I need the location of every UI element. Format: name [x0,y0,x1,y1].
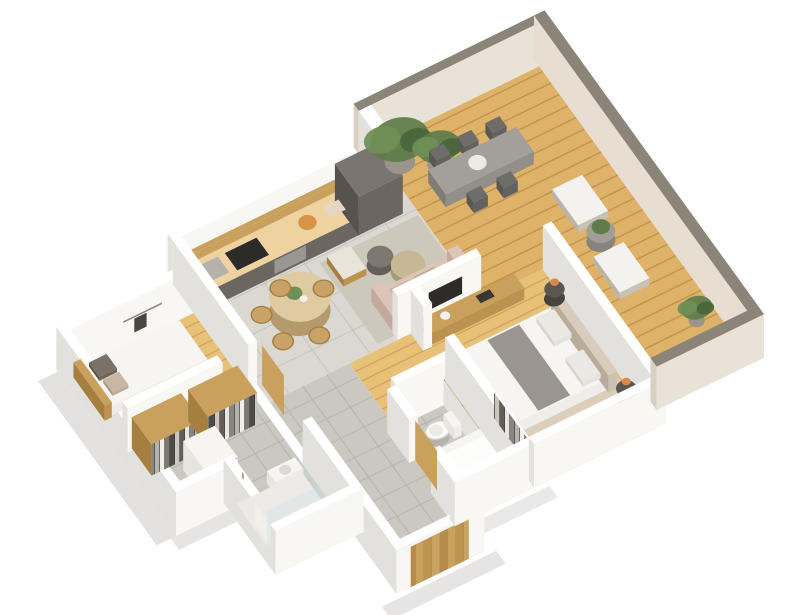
wall-wing-bottom [171,485,176,536]
wall-terrace-bottom-parapet [650,358,656,410]
apartment-3d-floorplan-render [0,0,800,615]
wall-bedroom1-wardrobe [122,402,127,453]
wall-shower-bottom [270,524,275,575]
wall-bedroom2-bottom [529,437,534,488]
floorplan-scene-svg [0,0,800,615]
wall-terrace-top-parapet [354,104,359,155]
wall-bedroom1-living [248,341,257,389]
wall-living-partition [392,289,397,340]
wall-entry-bottom [391,543,396,594]
wall-corridor-bedroom2-a [423,303,432,351]
wall-bathroom-bottom [450,476,455,527]
